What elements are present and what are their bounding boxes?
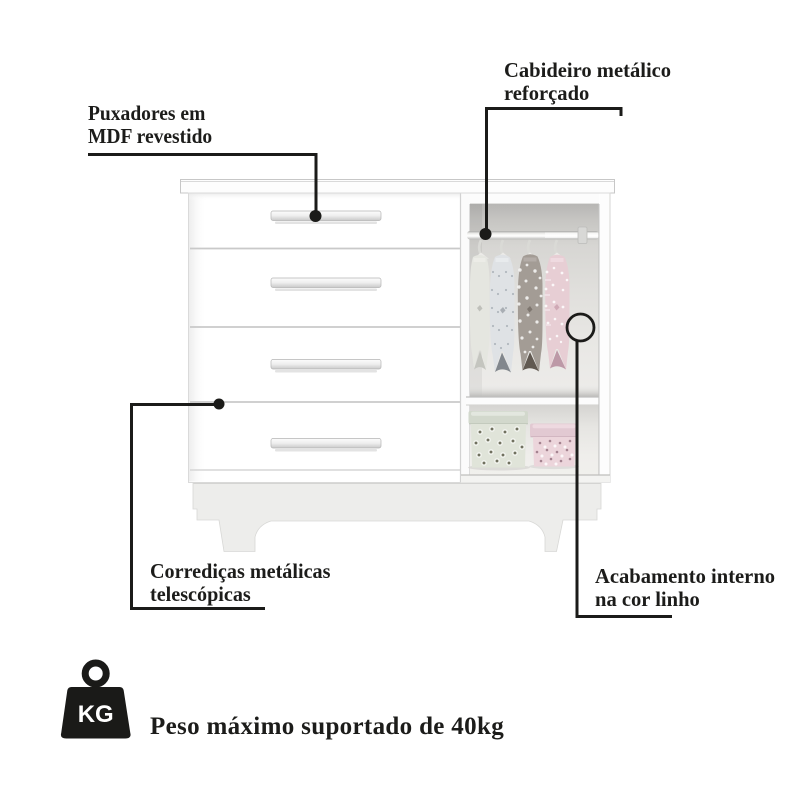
svg-text:KG: KG	[78, 701, 114, 728]
